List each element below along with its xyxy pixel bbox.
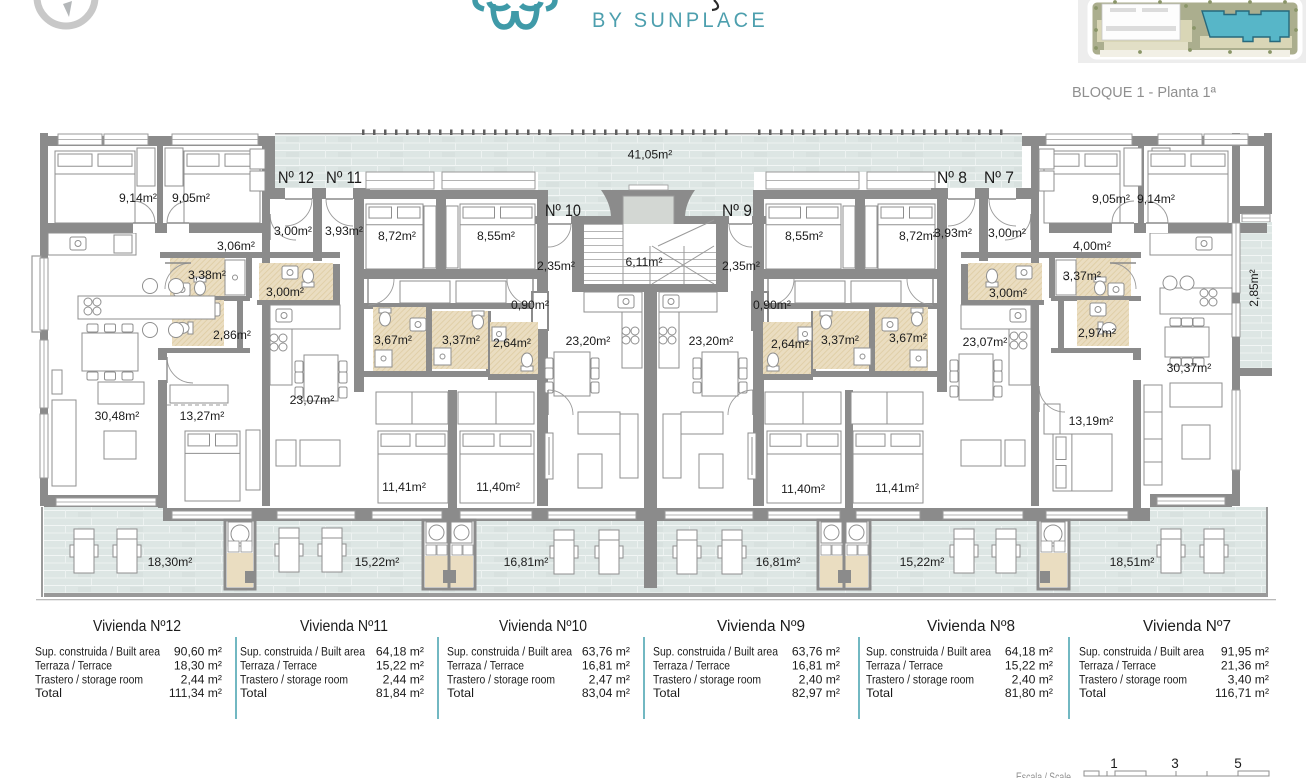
svg-text:Total: Total [240,686,267,700]
svg-text:2,35m²: 2,35m² [722,259,760,273]
svg-text:2,64m²: 2,64m² [493,336,531,350]
svg-text:3,40 m²: 3,40 m² [1228,672,1269,686]
svg-text:3,00m²: 3,00m² [989,286,1027,300]
svg-text:41,05m²: 41,05m² [628,148,673,162]
svg-text:2,47 m²: 2,47 m² [589,672,630,686]
svg-text:3,00m²: 3,00m² [266,285,304,299]
svg-text:3,37m²: 3,37m² [442,333,480,347]
svg-text:3: 3 [1171,756,1179,771]
svg-text:Total: Total [1079,686,1106,700]
svg-text:11,41m²: 11,41m² [875,481,919,495]
svg-text:2,86m²: 2,86m² [213,328,251,342]
svg-text:64,18 m²: 64,18 m² [376,644,424,658]
svg-text:Total: Total [447,686,474,700]
svg-text:Sup. construida / Built area: Sup. construida / Built area [240,644,365,658]
svg-text:Vivienda Nº11: Vivienda Nº11 [300,618,388,635]
svg-text:3,93m²: 3,93m² [325,224,363,238]
svg-text:11,40m²: 11,40m² [781,482,825,496]
svg-text:90,60 m²: 90,60 m² [174,644,222,658]
svg-text:91,95 m²: 91,95 m² [1221,644,1269,658]
svg-text:Total: Total [653,686,680,700]
svg-text:3,67m²: 3,67m² [374,333,412,347]
svg-text:8,55m²: 8,55m² [477,229,515,243]
svg-text:Nº 9: Nº 9 [722,201,752,220]
svg-text:2,35m²: 2,35m² [537,259,575,273]
svg-text:Sup. construida / Built area: Sup. construida / Built area [35,644,160,658]
svg-text:Nº 8: Nº 8 [937,168,967,187]
svg-text:1: 1 [1110,756,1118,771]
svg-text:Terraza / Terrace: Terraza / Terrace [240,659,317,673]
svg-text:2,40 m²: 2,40 m² [1012,672,1053,686]
svg-text:30,48m²: 30,48m² [95,409,140,423]
svg-text:116,71 m²: 116,71 m² [1215,686,1269,700]
svg-text:3,06m²: 3,06m² [217,239,255,253]
svg-text:21,36 m²: 21,36 m² [1221,659,1269,673]
svg-text:23,07m²: 23,07m² [290,393,335,407]
svg-text:3,67m²: 3,67m² [889,331,927,345]
svg-text:Escala / Scale: Escala / Scale [1016,770,1071,778]
svg-text:0,90m²: 0,90m² [753,298,791,312]
svg-text:3,38m²: 3,38m² [188,268,226,282]
svg-text:23,20m²: 23,20m² [689,334,734,348]
svg-text:Vivienda Nº8: Vivienda Nº8 [927,618,1015,635]
svg-text:15,22m²: 15,22m² [355,555,400,569]
svg-text:11,41m²: 11,41m² [382,480,426,494]
svg-text:2,40 m²: 2,40 m² [799,672,840,686]
svg-text:Sup. construida / Built area: Sup. construida / Built area [866,644,991,658]
svg-text:81,80 m²: 81,80 m² [1005,686,1053,700]
svg-text:11,40m²: 11,40m² [476,480,520,494]
svg-text:Nº 7: Nº 7 [984,168,1014,187]
svg-text:Terraza / Terrace: Terraza / Terrace [447,659,524,673]
svg-text:4,00m²: 4,00m² [1073,239,1111,253]
svg-text:3,93m²: 3,93m² [934,226,972,240]
svg-text:15,22m²: 15,22m² [900,555,945,569]
svg-text:Vivienda Nº9: Vivienda Nº9 [717,618,805,635]
svg-text:2,97m²: 2,97m² [1078,326,1116,340]
svg-text:2,85m²: 2,85m² [1247,269,1261,306]
svg-text:3,00m²: 3,00m² [988,226,1026,240]
svg-text:5: 5 [1234,756,1242,771]
svg-text:Trastero / storage room: Trastero / storage room [866,672,974,686]
svg-text:3,37m²: 3,37m² [821,333,859,347]
svg-text:Sup. construida / Built area: Sup. construida / Built area [447,644,572,658]
svg-text:8,72m²: 8,72m² [899,229,937,243]
svg-text:2,44 m²: 2,44 m² [181,672,222,686]
svg-text:30,37m²: 30,37m² [1167,361,1212,375]
svg-text:23,07m²: 23,07m² [963,335,1008,349]
svg-text:23,20m²: 23,20m² [566,334,611,348]
svg-text:Trastero / storage room: Trastero / storage room [35,672,143,686]
svg-text:16,81m²: 16,81m² [504,555,549,569]
svg-text:Sup. construida / Built area: Sup. construida / Built area [1079,644,1204,658]
svg-text:9,14m²: 9,14m² [119,191,157,205]
svg-text:18,51m²: 18,51m² [1110,555,1155,569]
svg-text:9,05m²: 9,05m² [1092,192,1130,206]
svg-text:3,00m²: 3,00m² [274,224,312,238]
svg-text:8,55m²: 8,55m² [785,229,823,243]
svg-text:Terraza / Terrace: Terraza / Terrace [866,659,943,673]
svg-text:9,05m²: 9,05m² [172,191,210,205]
svg-text:63,76 m²: 63,76 m² [792,644,840,658]
svg-text:Trastero / storage room: Trastero / storage room [1079,672,1187,686]
svg-text:111,34 m²: 111,34 m² [169,686,222,700]
svg-text:Terraza / Terrace: Terraza / Terrace [653,659,730,673]
svg-text:Nº 11: Nº 11 [326,168,362,187]
svg-text:16,81 m²: 16,81 m² [792,659,840,673]
svg-text:16,81m²: 16,81m² [756,555,801,569]
svg-text:0,90m²: 0,90m² [511,298,549,312]
svg-text:Trastero / storage room: Trastero / storage room [447,672,555,686]
svg-text:Total: Total [35,686,62,700]
svg-text:16,81 m²: 16,81 m² [582,659,630,673]
svg-text:Nº 12: Nº 12 [278,168,314,187]
svg-text:15,22 m²: 15,22 m² [1005,659,1053,673]
svg-text:15,22 m²: 15,22 m² [376,659,424,673]
svg-text:82,97 m²: 82,97 m² [792,686,840,700]
svg-text:81,84 m²: 81,84 m² [376,686,424,700]
svg-text:2,64m²: 2,64m² [771,337,809,351]
svg-text:13,27m²: 13,27m² [180,409,225,423]
svg-text:Vivienda Nº12: Vivienda Nº12 [93,618,181,635]
svg-text:Terraza / Terrace: Terraza / Terrace [1079,659,1156,673]
svg-text:8,72m²: 8,72m² [378,229,416,243]
svg-text:BY SUNPLACE: BY SUNPLACE [592,9,768,32]
svg-text:13,19m²: 13,19m² [1069,414,1114,428]
svg-text:2,44 m²: 2,44 m² [383,672,424,686]
svg-text:Sup. construida / Built area: Sup. construida / Built area [653,644,778,658]
svg-text:Vivienda Nº7: Vivienda Nº7 [1143,618,1231,635]
svg-text:Terraza / Terrace: Terraza / Terrace [35,659,112,673]
svg-text:6,11m²: 6,11m² [625,255,662,269]
svg-text:83,04 m²: 83,04 m² [582,686,630,700]
svg-text:Total: Total [866,686,893,700]
svg-text:BLOQUE 1 - Planta 1ª: BLOQUE 1 - Planta 1ª [1072,85,1217,101]
svg-text:Trastero / storage room: Trastero / storage room [240,672,348,686]
svg-text:Trastero / storage room: Trastero / storage room [653,672,761,686]
svg-text:Vivienda Nº10: Vivienda Nº10 [499,618,587,635]
svg-text:64,18 m²: 64,18 m² [1005,644,1053,658]
svg-text:63,76 m²: 63,76 m² [582,644,630,658]
svg-text:3,37m²: 3,37m² [1063,269,1101,283]
svg-text:18,30m²: 18,30m² [148,555,193,569]
svg-text:9,14m²: 9,14m² [1137,192,1175,206]
svg-text:18,30 m²: 18,30 m² [174,659,222,673]
svg-text:Nº 10: Nº 10 [545,201,581,220]
